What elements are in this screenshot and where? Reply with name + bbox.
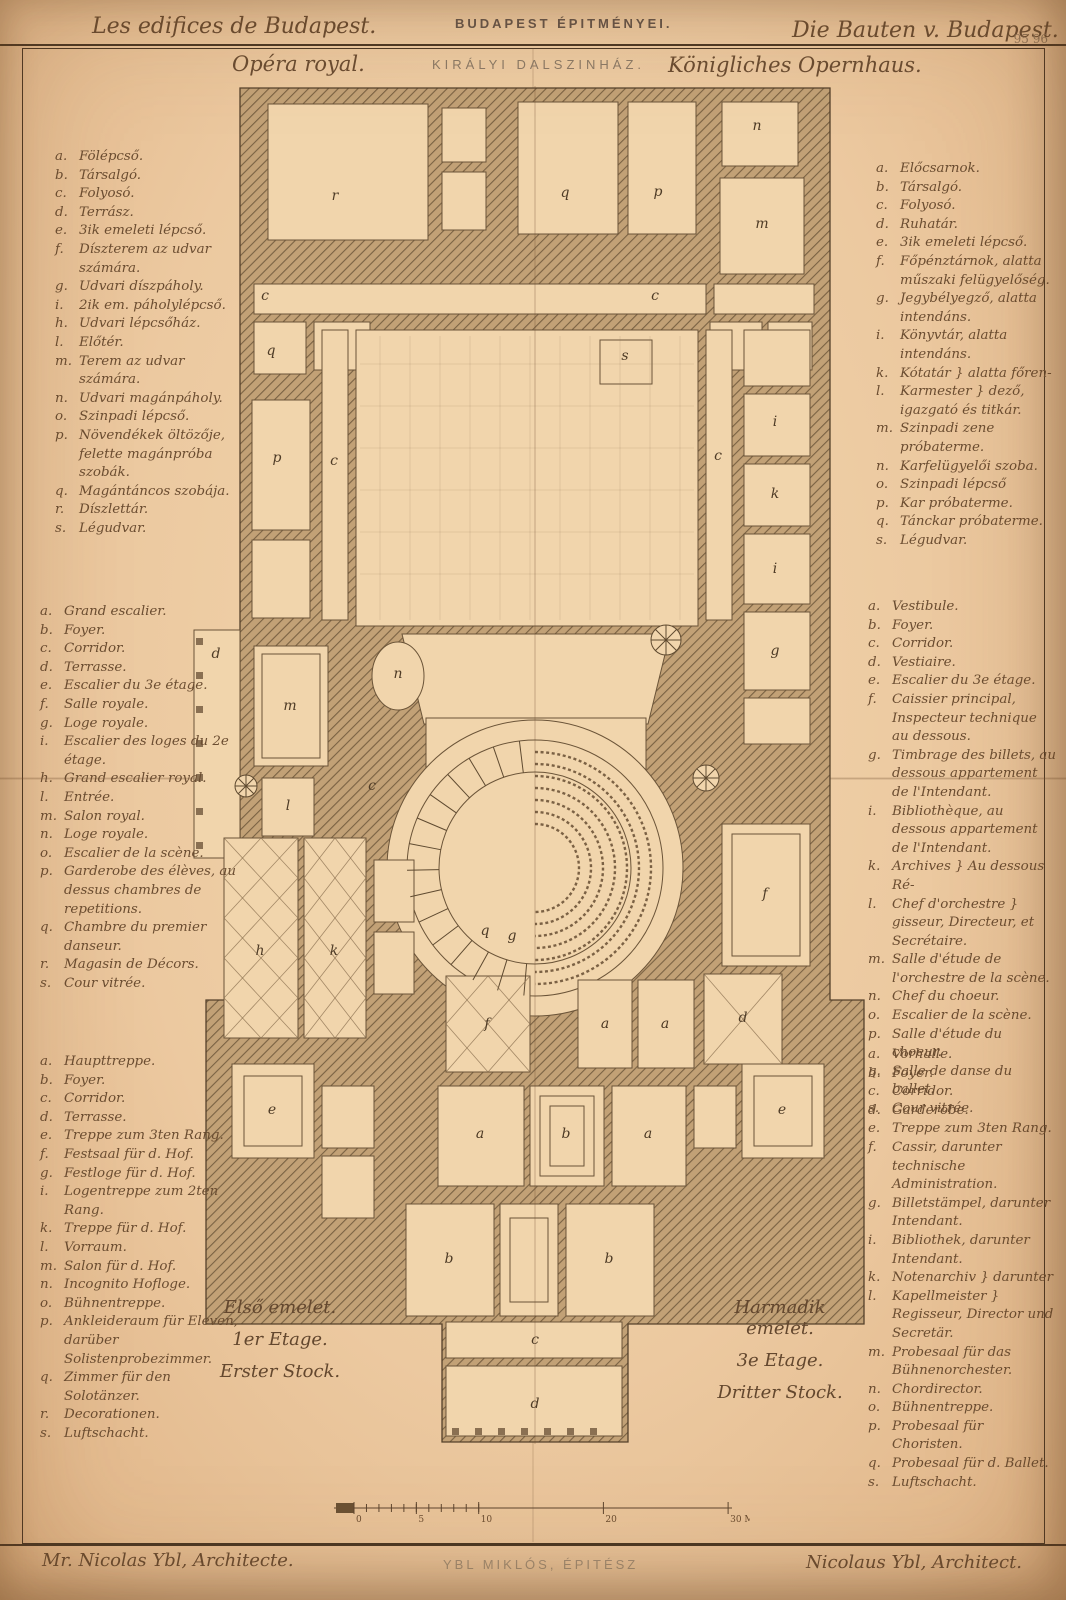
legend-item: l.Entrée. — [40, 789, 242, 808]
svg-text:s: s — [621, 348, 628, 364]
svg-text:i: i — [773, 414, 777, 430]
svg-text:c: c — [261, 288, 269, 304]
legend-item: h.Udvari lépcsőház. — [55, 315, 240, 334]
legend-item: l.Előtér. — [55, 334, 240, 353]
svg-text:g: g — [508, 928, 517, 944]
legend-item: d.Vestiaire. — [868, 654, 1056, 673]
legend-item: f.Főpénztárnok, alatta műszaki felügyelő… — [876, 253, 1054, 290]
svg-text:l: l — [286, 798, 290, 814]
architect-credit-hungarian: YBL MIKLÓS, ÉPITÉSZ — [443, 1557, 638, 1572]
svg-text:30 M.: 30 M. — [730, 1515, 750, 1524]
legend-item: c.Corridor. — [868, 635, 1056, 654]
legend-item: e.Escalier du 3e étage. — [40, 677, 242, 696]
legend-item: l.Chef d'orchestre } gisseur, Directeur,… — [868, 896, 1056, 952]
legend-item: c.Folyosó. — [55, 185, 240, 204]
legend-item: i.Escalier des loges du 2e étage. — [40, 733, 242, 770]
legend-item: g.Billetstämpel, darunter Intendant. — [868, 1195, 1056, 1232]
floor-label-line: Első emelet. — [200, 1297, 360, 1318]
header-rule — [0, 44, 1066, 46]
subtitle-french: Opéra royal. — [232, 52, 365, 76]
svg-text:a: a — [601, 1016, 609, 1032]
legend-item: a.Grand escalier. — [40, 603, 242, 622]
floor-label-line: Dritter Stock. — [700, 1382, 860, 1403]
legend-item: q.Probesaal für d. Ballet. — [868, 1455, 1056, 1474]
legend-item: p.Garderobe des élèves, au dessus chambr… — [40, 863, 242, 919]
svg-text:i: i — [773, 561, 777, 577]
legend-item: b.Társalgó. — [55, 167, 240, 186]
legend-french-first-floor: a.Grand escalier.b.Foyer.c.Corridor.d.Te… — [40, 603, 242, 993]
legend-item: r.Decorationen. — [40, 1406, 242, 1425]
scale-bar: 05102030 M. — [330, 1494, 750, 1524]
svg-text:c: c — [651, 288, 659, 304]
footer-rule — [0, 1544, 1066, 1546]
legend-item: i.Bibliothèque, au dessous appartement d… — [868, 803, 1056, 859]
legend-item: c.Corridor. — [40, 640, 242, 659]
legend-item: i.Logentreppe zum 2ten Rang. — [40, 1183, 242, 1220]
svg-text:b: b — [445, 1251, 454, 1267]
legend-item: k.Notenarchiv } darunter — [868, 1269, 1056, 1288]
legend-item: r.Magasin de Décors. — [40, 956, 242, 975]
legend-item: s.Légudvar. — [876, 532, 1054, 551]
svg-text:a: a — [476, 1126, 484, 1142]
svg-text:b: b — [605, 1251, 614, 1267]
legend-item: g.Loge royale. — [40, 715, 242, 734]
legend-item: m.Salon für d. Hof. — [40, 1258, 242, 1277]
legend-item: m.Salle d'étude de l'orchestre de la scè… — [868, 951, 1056, 988]
subtitle-german: Königliches Opernhaus. — [668, 53, 922, 77]
legend-item: h.Grand escalier royal. — [40, 770, 242, 789]
legend-item: b.Foyer. — [40, 1072, 242, 1091]
legend-french-third-floor: a.Vestibule.b.Foyer.c.Corridor.d.Vestiai… — [868, 598, 1056, 1119]
legend-item: m.Terem az udvar számára. — [55, 353, 240, 390]
plate-page: Les edifices de Budapest. BUDAPEST ÉPITM… — [0, 0, 1066, 1600]
legend-item: o.Escalier de la scène. — [868, 1007, 1056, 1026]
floor-label-line: Harmadik emelet. — [700, 1297, 860, 1339]
legend-item: k.Kótatár } alatta főren- — [876, 365, 1054, 384]
legend-item: f.Festsaal für d. Hof. — [40, 1146, 242, 1165]
legend-item: q.Chambre du premier danseur. — [40, 919, 242, 956]
legend-item: o.Szinpadi lépcső. — [55, 408, 240, 427]
legend-item: g.Timbrage des billets, au dessous appar… — [868, 747, 1056, 803]
svg-text:c: c — [368, 778, 376, 794]
svg-text:q: q — [267, 343, 276, 359]
legend-item: n.Udvari magánpáholy. — [55, 390, 240, 409]
legend-item: e.Treppe zum 3ten Rang. — [868, 1120, 1056, 1139]
svg-text:n: n — [752, 118, 761, 134]
legend-item: b.Foyer. — [868, 617, 1056, 636]
legend-item: i.Bibliothek, darunter Intendant. — [868, 1232, 1056, 1269]
floor-label-line: Erster Stock. — [200, 1361, 360, 1382]
legend-item: e.3ik emeleti lépcső. — [876, 234, 1054, 253]
legend-item: g.Jegybélyegző, alatta intendáns. — [876, 290, 1054, 327]
legend-item: b.Foyer. — [40, 622, 242, 641]
svg-text:b: b — [562, 1126, 571, 1142]
legend-item: d.Terrász. — [55, 204, 240, 223]
svg-text:q: q — [481, 923, 490, 939]
svg-text:k: k — [330, 943, 338, 959]
svg-text:e: e — [778, 1102, 786, 1118]
legend-item: k.Treppe für d. Hof. — [40, 1220, 242, 1239]
legend-item: f.Salle royale. — [40, 696, 242, 715]
architect-credit-french: Mr. Nicolas Ybl, Architecte. — [42, 1550, 294, 1571]
legend-item: c.Folyosó. — [876, 197, 1054, 216]
legend-item: a.Vorhalle. — [868, 1046, 1056, 1065]
legend-hungarian-third-floor: a.Előcsarnok.b.Társalgó.c.Folyosó.d.Ruha… — [876, 160, 1054, 550]
legend-item: a.Vestibule. — [868, 598, 1056, 617]
svg-text:a: a — [661, 1016, 669, 1032]
legend-item: s.Luftschacht. — [40, 1425, 242, 1444]
svg-text:0: 0 — [356, 1515, 362, 1524]
legend-item: a.Haupttreppe. — [40, 1053, 242, 1072]
legend-item: l.Kapellmeister } Regisseur, Director un… — [868, 1288, 1056, 1344]
legend-item: d.Garderobe. — [868, 1102, 1056, 1121]
svg-text:m: m — [283, 698, 296, 714]
legend-item: d.Terrasse. — [40, 659, 242, 678]
legend-item: r.Díszlettár. — [55, 501, 240, 520]
svg-text:5: 5 — [418, 1515, 424, 1524]
legend-item: i.2ik em. páholylépcső. — [55, 297, 240, 316]
legend-item: e.Treppe zum 3ten Rang. — [40, 1127, 242, 1146]
title-french: Les edifices de Budapest. — [92, 14, 376, 39]
legend-item: e.3ik emeleti lépcső. — [55, 222, 240, 241]
legend-item: i.Könyvtár, alatta intendáns. — [876, 327, 1054, 364]
legend-item: n.Chordirector. — [868, 1381, 1056, 1400]
title-hungarian: BUDAPEST ÉPITMÉNYEI. — [455, 16, 672, 31]
legend-item: q.Magántáncos szobája. — [55, 483, 240, 502]
legend-item: k.Archives } Au dessous Ré- — [868, 858, 1056, 895]
svg-text:n: n — [393, 666, 402, 682]
legend-item: g.Festloge für d. Hof. — [40, 1165, 242, 1184]
svg-text:c: c — [714, 448, 722, 464]
legend-item: o.Bühnentreppe. — [868, 1399, 1056, 1418]
legend-item: f.Caissier principal, Inspecteur techniq… — [868, 691, 1056, 747]
legend-item: c.Corridor. — [40, 1090, 242, 1109]
svg-text:g: g — [771, 643, 780, 659]
legend-item: d.Ruhatár. — [876, 216, 1054, 235]
floor-label-line: 3e Etage. — [700, 1350, 860, 1371]
legend-item: c.Corridor. — [868, 1083, 1056, 1102]
floor-label-line: 1er Etage. — [200, 1329, 360, 1350]
legend-item: m.Szinpadi zene próbaterme. — [876, 420, 1054, 457]
svg-text:m: m — [755, 216, 768, 232]
svg-text:q: q — [561, 185, 570, 201]
svg-text:h: h — [255, 943, 264, 959]
legend-item: a.Előcsarnok. — [876, 160, 1054, 179]
svg-text:p: p — [654, 184, 663, 200]
legend-item: d.Terrasse. — [40, 1109, 242, 1128]
legend-item: s.Cour vitrée. — [40, 975, 242, 994]
legend-item: l.Vorraum. — [40, 1239, 242, 1258]
svg-text:p: p — [273, 450, 282, 466]
legend-item: p.Kar próbaterme. — [876, 495, 1054, 514]
legend-item: b.Foyer. — [868, 1065, 1056, 1084]
svg-text:10: 10 — [481, 1515, 493, 1524]
svg-text:c: c — [330, 453, 338, 469]
legend-item: o.Escalier de la scène. — [40, 845, 242, 864]
floor-plan-drawing: rqpnmccqspccikigdmnlchkqgffaadeeababbcd — [150, 78, 920, 1478]
architect-credit-german: Nicolaus Ybl, Architect. — [806, 1552, 1022, 1573]
legend-item: s.Légudvar. — [55, 520, 240, 539]
floor-label-third-floor: Harmadik emelet. 3e Etage. Dritter Stock… — [700, 1297, 860, 1414]
legend-item: e.Escalier du 3e étage. — [868, 672, 1056, 691]
legend-item: l.Karmester } dező, igazgató és titkár. — [876, 383, 1054, 420]
legend-item: n.Loge royale. — [40, 826, 242, 845]
legend-item: f.Díszterem az udvar számára. — [55, 241, 240, 278]
legend-hungarian-first-floor: a.Fölépcső.b.Társalgó.c.Folyosó.d.Terrás… — [55, 148, 240, 538]
legend-item: n.Karfelügyelői szoba. — [876, 458, 1054, 477]
legend-item: s.Luftschacht. — [868, 1474, 1056, 1493]
legend-german-third-floor: a.Vorhalle.b.Foyer.c.Corridor.d.Garderob… — [868, 1046, 1056, 1492]
legend-item: q.Tánckar próbaterme. — [876, 513, 1054, 532]
legend-item: b.Társalgó. — [876, 179, 1054, 198]
floor-label-first-floor: Első emelet. 1er Etage. Erster Stock. — [200, 1297, 360, 1393]
legend-item: n.Incognito Hofloge. — [40, 1276, 242, 1295]
legend-item: g.Udvari díszpáholy. — [55, 278, 240, 297]
legend-item: n.Chef du choeur. — [868, 988, 1056, 1007]
legend-item: o.Szinpadi lépcső — [876, 476, 1054, 495]
svg-text:d: d — [739, 1010, 748, 1026]
svg-text:k: k — [771, 486, 779, 502]
svg-text:e: e — [268, 1102, 276, 1118]
legend-item: p.Probesaal für Choristen. — [868, 1418, 1056, 1455]
legend-item: m.Probesaal für das Bühnenorchester. — [868, 1344, 1056, 1381]
legend-item: f.Cassir, darunter technische Administra… — [868, 1139, 1056, 1195]
svg-text:a: a — [644, 1126, 652, 1142]
svg-text:20: 20 — [605, 1515, 617, 1524]
subtitle-hungarian: KIRÁLYI DALSZINHÁZ. — [432, 57, 645, 72]
legend-item: p.Növendékek öltözője, felette magánprób… — [55, 427, 240, 483]
legend-item: m.Salon royal. — [40, 808, 242, 827]
legend-item: a.Fölépcső. — [55, 148, 240, 167]
